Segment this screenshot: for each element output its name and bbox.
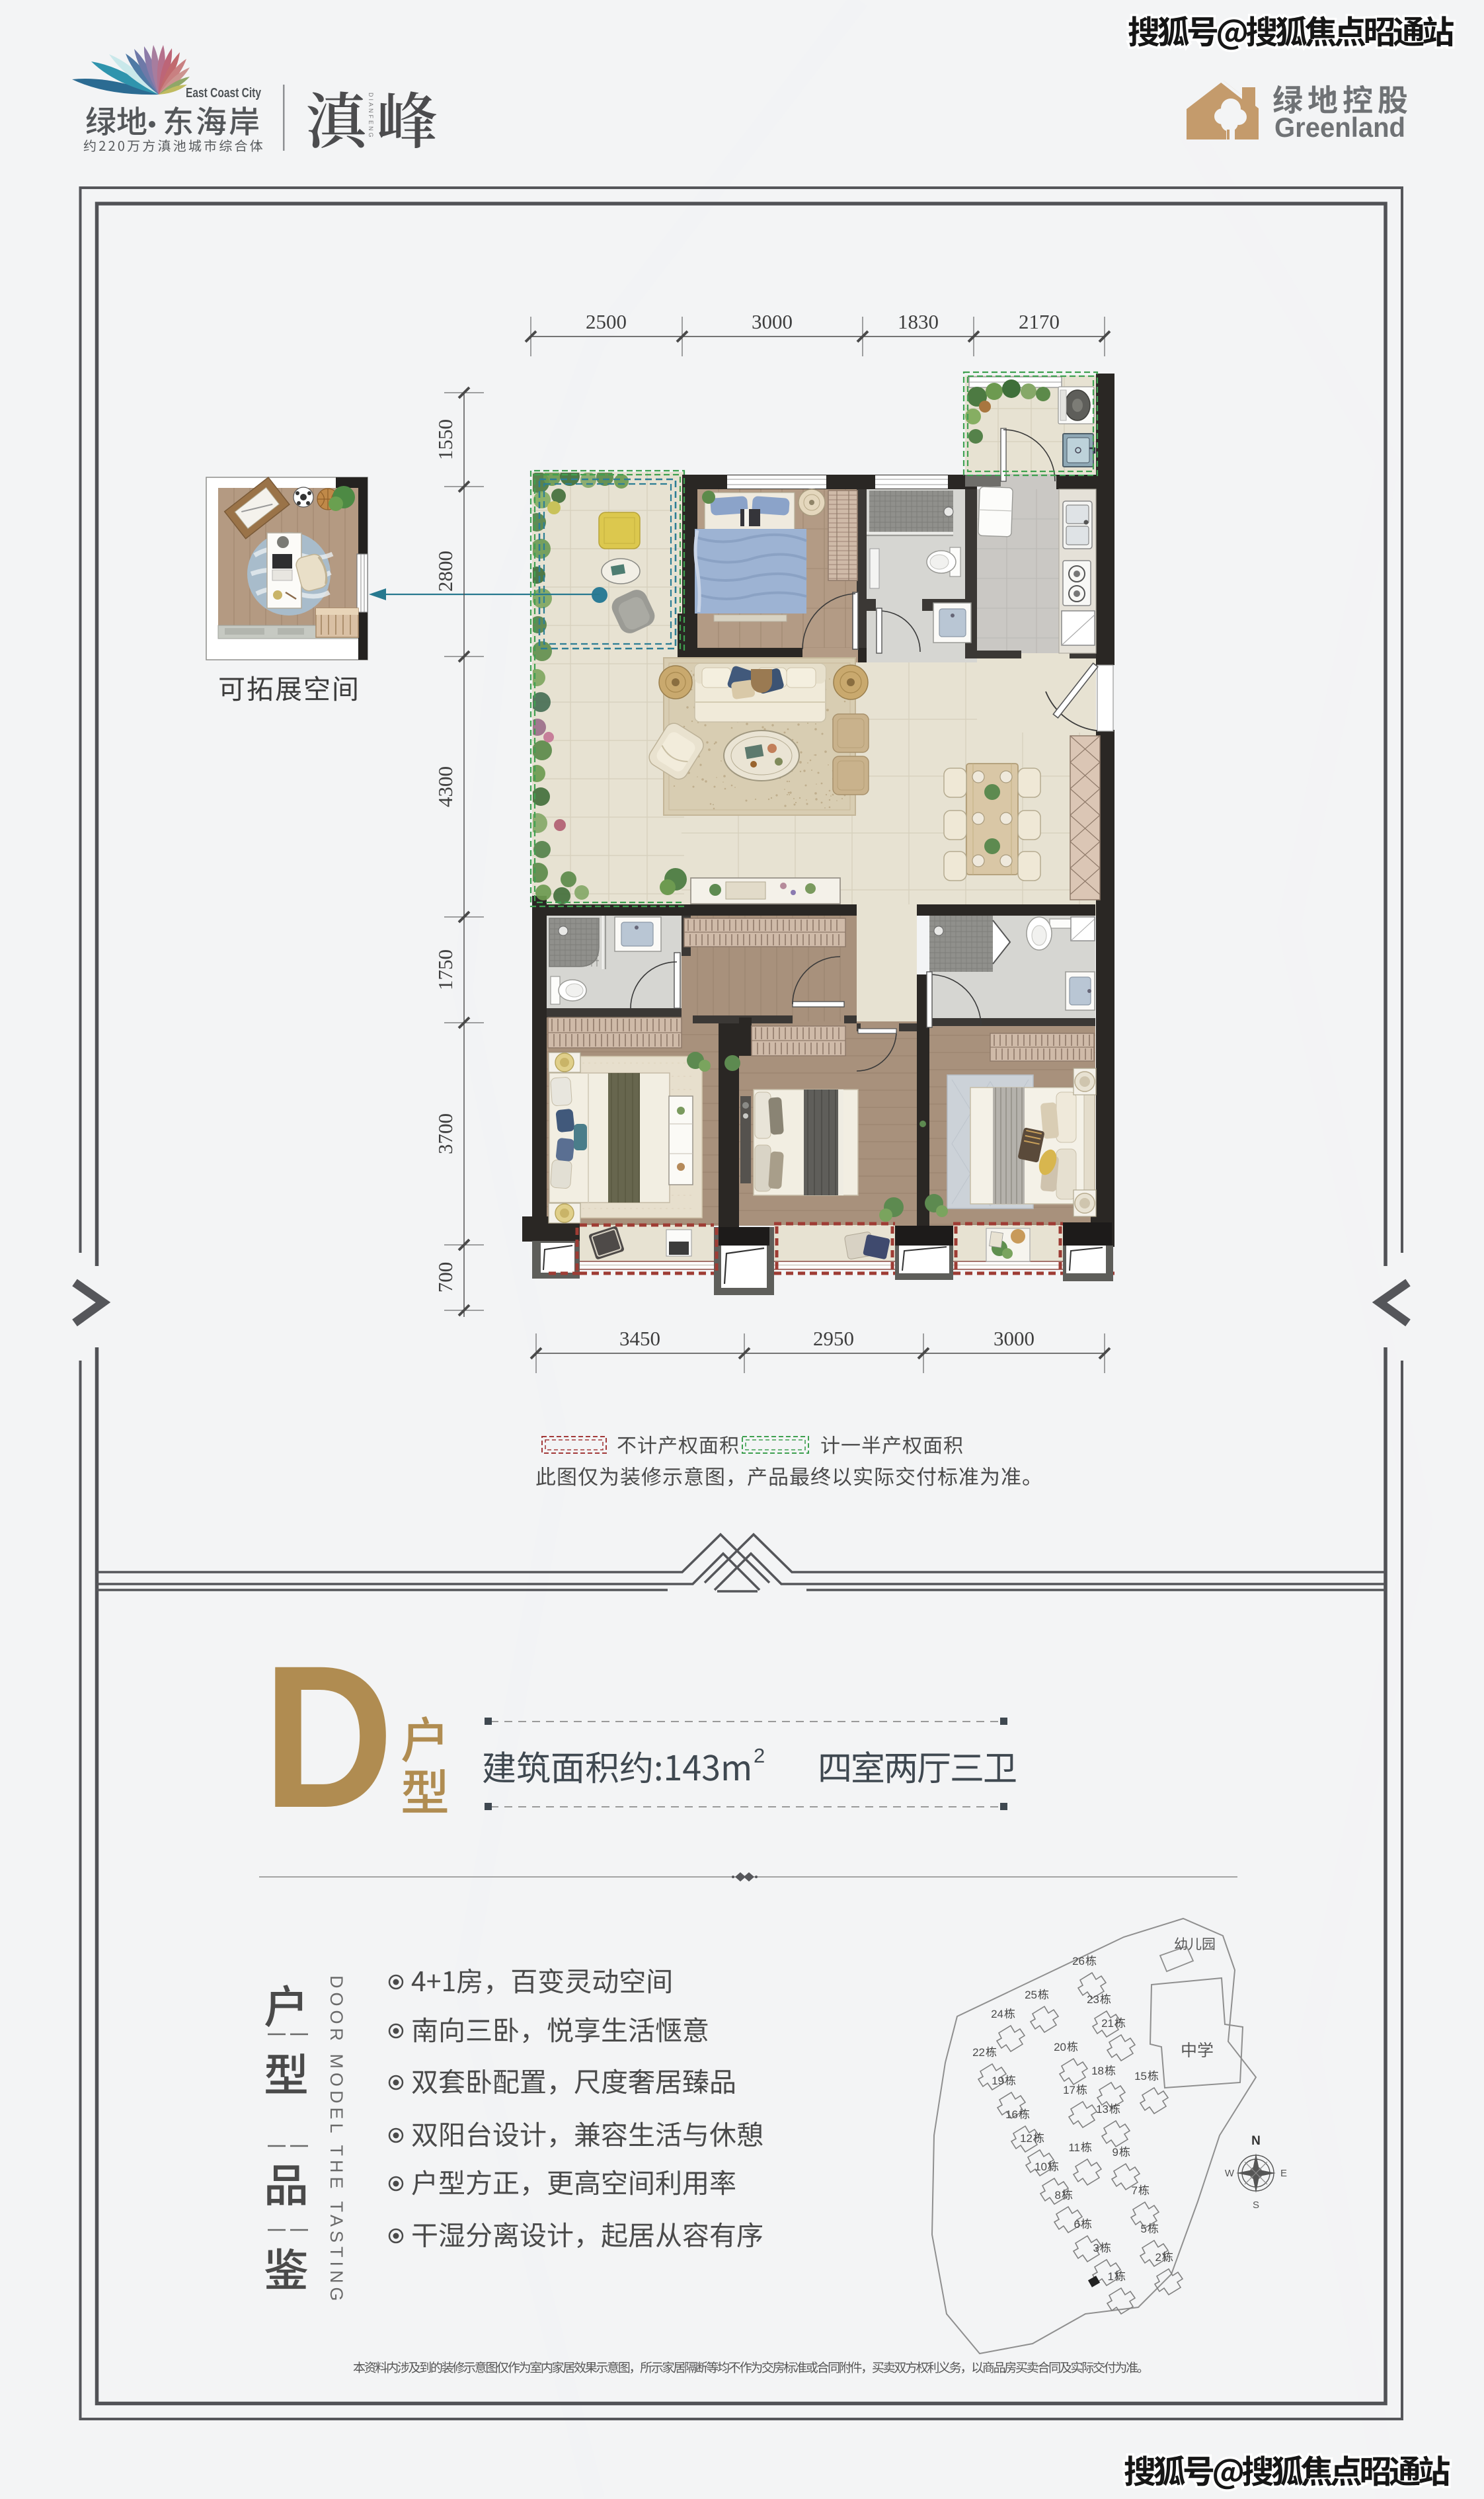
svg-text:1750: 1750: [434, 949, 457, 990]
svg-text:11: 11: [1068, 2141, 1080, 2154]
svg-text:22: 22: [972, 2046, 985, 2059]
svg-text:15: 15: [1134, 2070, 1147, 2082]
svg-text:19: 19: [992, 2075, 1004, 2087]
svg-text:20: 20: [1054, 2041, 1066, 2053]
svg-text:10: 10: [1035, 2161, 1047, 2173]
svg-text:1830: 1830: [898, 310, 939, 333]
svg-text:2: 2: [754, 1744, 765, 1767]
svg-text:17: 17: [1063, 2084, 1075, 2096]
svg-text:S: S: [1253, 2200, 1259, 2211]
svg-text:18: 18: [1091, 2065, 1104, 2077]
svg-text:E: E: [1280, 2168, 1287, 2179]
svg-text:21: 21: [1101, 2017, 1114, 2030]
svg-text:4300: 4300: [434, 766, 457, 807]
svg-text:3000: 3000: [752, 310, 793, 333]
svg-text:Greenland: Greenland: [1274, 112, 1405, 143]
svg-text:DIANFENG: DIANFENG: [368, 93, 374, 139]
svg-text:2800: 2800: [434, 551, 457, 592]
svg-text:D: D: [263, 1623, 393, 1850]
svg-text:25: 25: [1025, 1989, 1037, 2001]
svg-text:East Coast City: East Coast City: [186, 86, 262, 100]
svg-text:7: 7: [1132, 2184, 1138, 2197]
svg-text:3700: 3700: [434, 1113, 457, 1154]
svg-text:26: 26: [1072, 1955, 1085, 1967]
svg-text:2500: 2500: [586, 310, 627, 333]
svg-text:9: 9: [1113, 2146, 1118, 2159]
svg-text:3000: 3000: [994, 1327, 1035, 1350]
svg-text:2170: 2170: [1019, 310, 1060, 333]
svg-text:6: 6: [1074, 2218, 1080, 2231]
svg-text:2: 2: [1155, 2251, 1161, 2264]
svg-text:DOOR MODEL THE TASTING: DOOR MODEL THE TASTING: [327, 1975, 346, 2305]
svg-text:5: 5: [1141, 2223, 1147, 2235]
svg-text:8: 8: [1055, 2189, 1061, 2201]
svg-text:1550: 1550: [434, 419, 457, 460]
svg-text:12: 12: [1020, 2132, 1033, 2145]
svg-text:1: 1: [1108, 2270, 1114, 2283]
svg-text:W: W: [1225, 2168, 1235, 2179]
svg-text:13: 13: [1096, 2103, 1109, 2116]
svg-text:24: 24: [991, 2008, 1003, 2020]
svg-text:23: 23: [1087, 1993, 1099, 2006]
svg-text:3450: 3450: [619, 1327, 660, 1350]
svg-text:N: N: [1251, 2134, 1261, 2148]
svg-text:700: 700: [434, 1262, 457, 1293]
svg-text:3: 3: [1093, 2242, 1099, 2254]
svg-text:16: 16: [1005, 2108, 1018, 2121]
svg-text:2950: 2950: [813, 1327, 854, 1350]
